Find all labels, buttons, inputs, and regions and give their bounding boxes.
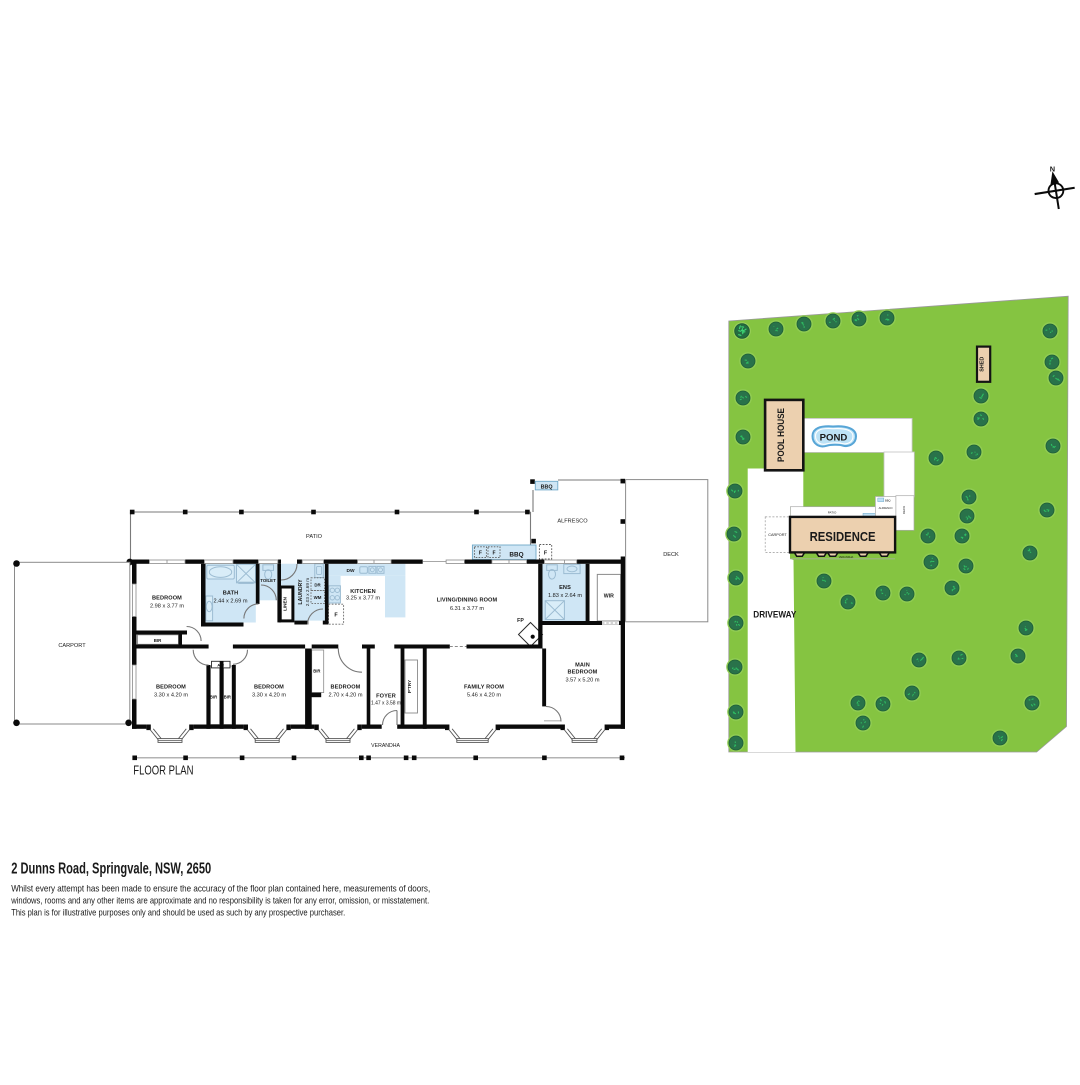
svg-text:LAUNDRY: LAUNDRY [298,579,304,605]
svg-text:FLOOR PLAN: FLOOR PLAN [133,763,193,778]
svg-text:2.70 x 4.20 m: 2.70 x 4.20 m [329,693,363,699]
svg-text:DECK: DECK [902,506,906,514]
svg-text:2.03 x 2.69 m: 2.03 x 2.69 m [305,578,310,606]
svg-text:BIR: BIR [154,638,162,643]
svg-text:BEDROOM: BEDROOM [152,595,182,601]
svg-text:BEDROOM: BEDROOM [568,670,598,676]
svg-text:KITCHEN: KITCHEN [350,589,376,595]
svg-text:CARPORT: CARPORT [58,643,86,649]
svg-text:DR: DR [314,582,321,587]
svg-text:ENS: ENS [559,585,571,591]
svg-text:This plan is for illustrative: This plan is for illustrative purposes o… [11,908,345,918]
svg-text:LIVING/DINING ROOM: LIVING/DINING ROOM [437,598,498,604]
svg-text:BEDROOM: BEDROOM [156,685,186,691]
svg-text:BIR: BIR [210,695,217,700]
svg-text:BBQ: BBQ [541,484,553,490]
svg-text:FP: FP [517,618,524,624]
svg-text:2.98 x 3.77 m: 2.98 x 3.77 m [150,603,184,609]
svg-text:5.46 x 4.20 m: 5.46 x 4.20 m [467,693,501,699]
svg-text:PATIO: PATIO [306,534,323,540]
svg-text:F: F [479,551,482,557]
svg-text:VERANDHA: VERANDHA [839,555,854,559]
svg-text:3.30 x 4.20 m: 3.30 x 4.20 m [252,693,286,699]
svg-text:BIR: BIR [313,669,320,674]
svg-text:3.25 x 3.77 m: 3.25 x 3.77 m [346,596,380,602]
svg-text:ALFRESCO: ALFRESCO [879,506,893,510]
svg-text:BBQ: BBQ [885,498,890,502]
svg-text:P'TRY: P'TRY [407,680,412,693]
svg-text:ALFRESCO: ALFRESCO [557,519,588,525]
svg-text:POOL HOUSE: POOL HOUSE [776,408,786,462]
svg-text:RESIDENCE: RESIDENCE [810,530,876,544]
svg-text:3.30 x 4.20 m: 3.30 x 4.20 m [154,693,188,699]
svg-text:Whilst every attempt has been: Whilst every attempt has been made to en… [11,884,430,894]
svg-text:1.47 x 3.58 m: 1.47 x 3.58 m [371,701,401,707]
svg-text:PATIO: PATIO [828,510,837,514]
svg-text:FOYER: FOYER [376,694,396,700]
svg-text:LINEN: LINEN [283,596,288,610]
svg-text:BBQ: BBQ [509,552,523,559]
svg-text:1.83 x 2.64 m: 1.83 x 2.64 m [548,593,582,599]
svg-text:windows, rooms and any other i: windows, rooms and any other items are a… [10,896,429,906]
svg-text:POND: POND [820,433,848,444]
svg-text:DW: DW [347,568,355,574]
svg-text:F: F [492,551,495,557]
svg-text:WM: WM [314,595,322,600]
svg-text:CARPORT: CARPORT [768,533,787,537]
svg-text:BEDROOM: BEDROOM [254,685,284,691]
svg-text:FAMILY ROOM: FAMILY ROOM [464,685,504,691]
svg-text:DRIVEWAY: DRIVEWAY [753,609,796,619]
svg-text:BIR: BIR [224,695,231,700]
svg-text:DECK: DECK [663,552,679,558]
svg-text:TOILET: TOILET [260,578,276,583]
svg-text:2.44 x 2.69 m: 2.44 x 2.69 m [214,598,248,604]
svg-text:VERANDHA: VERANDHA [371,743,400,749]
svg-text:2 Dunns Road, Springvale, NSW,: 2 Dunns Road, Springvale, NSW, 2650 [11,860,211,877]
svg-text:BATH: BATH [223,591,239,597]
svg-text:BEDROOM: BEDROOM [331,685,361,691]
svg-text:3.57 x 5.20 m: 3.57 x 5.20 m [566,678,600,684]
svg-text:MAIN: MAIN [575,663,590,669]
svg-text:SHED: SHED [980,357,986,372]
svg-text:WIR: WIR [604,593,614,599]
svg-text:6.31 x 3.77 m: 6.31 x 3.77 m [450,606,484,612]
